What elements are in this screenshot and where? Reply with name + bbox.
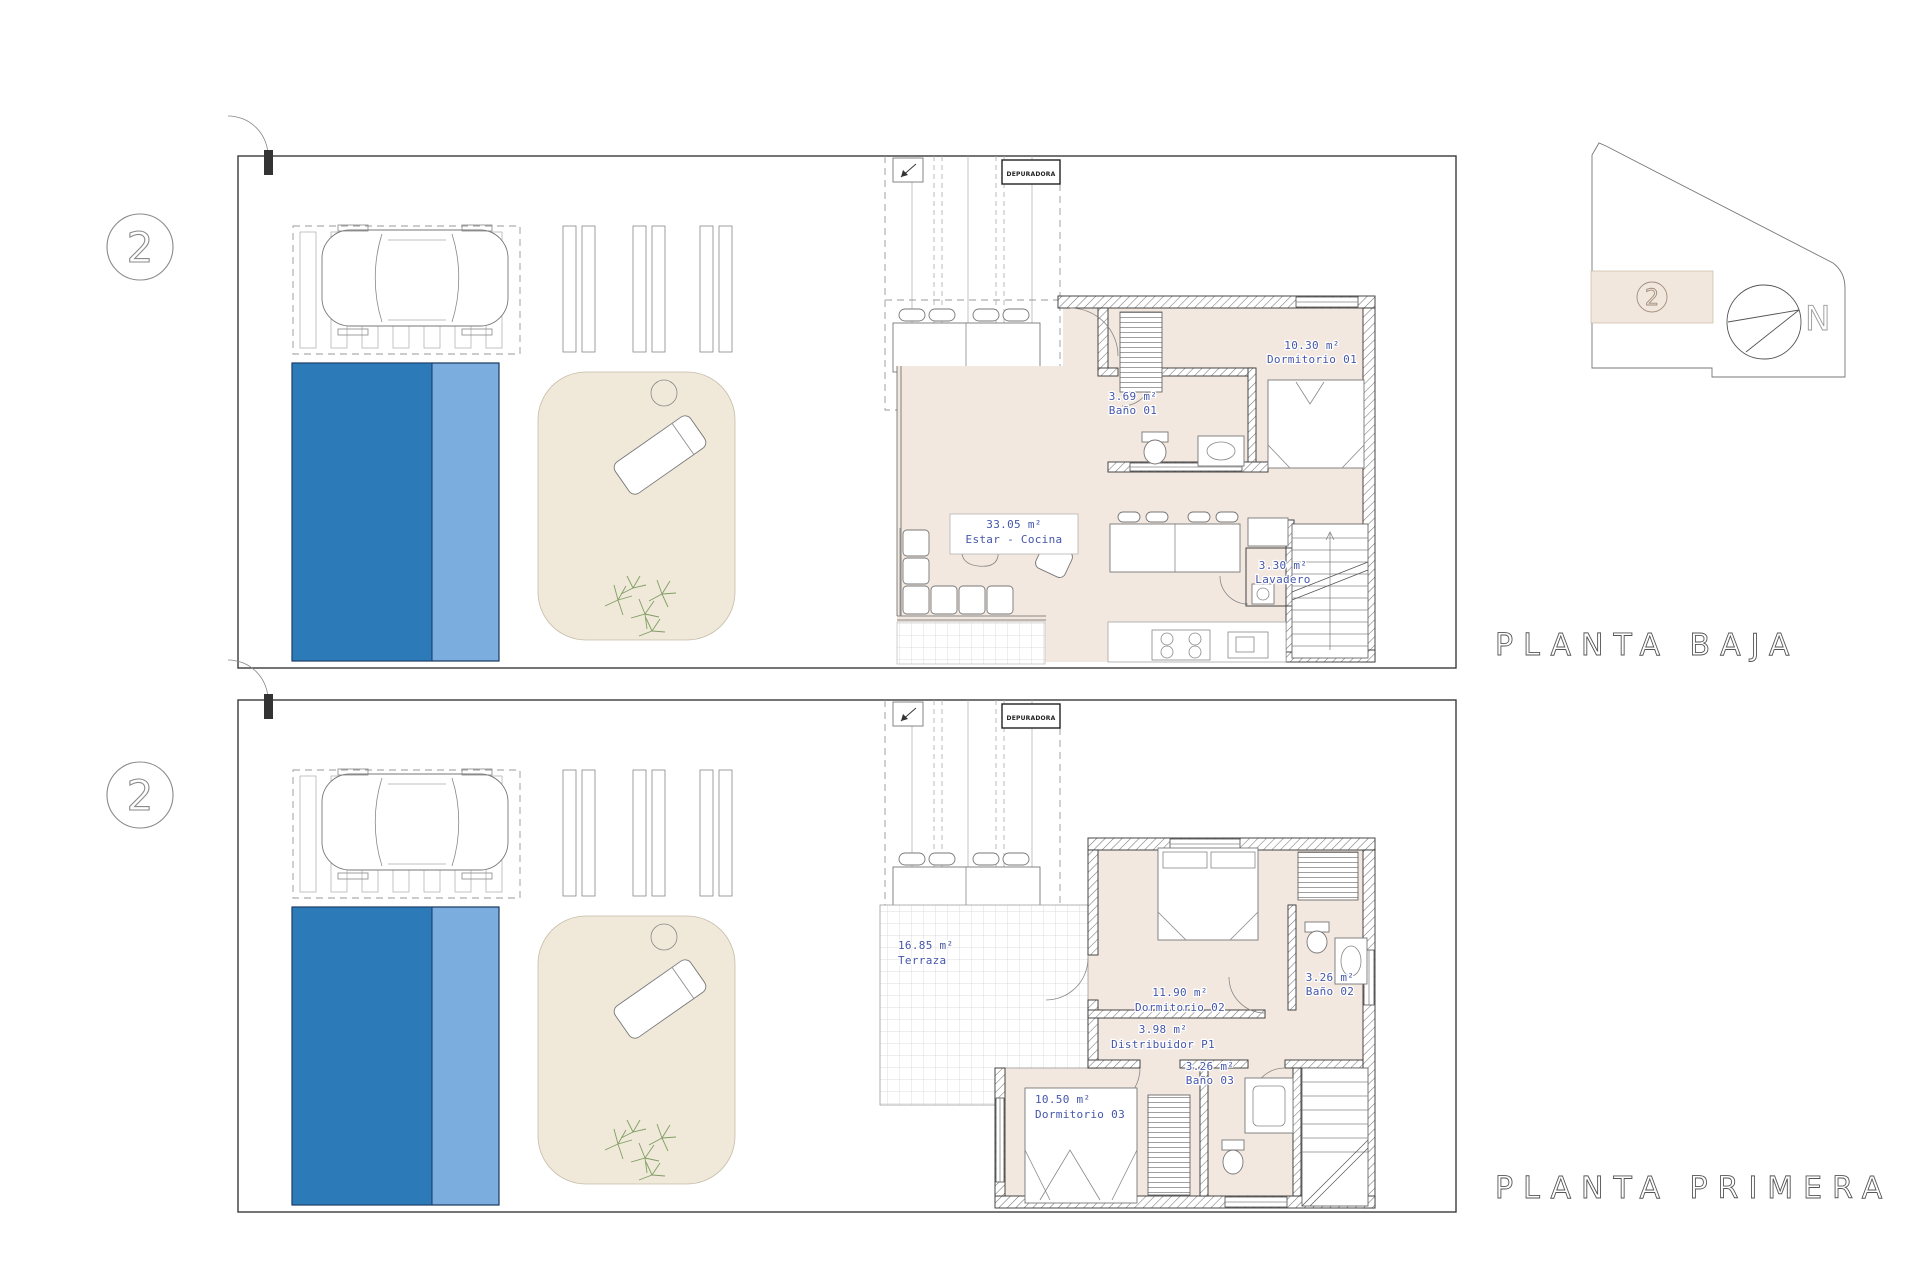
- room-label-distribuidor: Distribuidor P1: [1111, 1038, 1215, 1051]
- wardrobe: [1298, 852, 1358, 900]
- room-area-lavadero: 3.30 m²: [1259, 559, 1307, 572]
- room-label-bano-02: Baño 02: [1306, 985, 1354, 998]
- closet: [1148, 1095, 1190, 1195]
- key-plan: 2 N: [1591, 143, 1845, 377]
- plan-title-planta-primera: PLANTA PRIMERA: [1495, 1171, 1892, 1206]
- room-label-dormitorio-01: Dormitorio 01: [1267, 353, 1357, 366]
- planta-baja-plan: DEPURADORA: [107, 116, 1799, 668]
- room-label-bano-03: Baño 03: [1186, 1074, 1234, 1087]
- room-label-bano-01: Baño 01: [1109, 404, 1157, 417]
- wardrobe: [1120, 312, 1162, 392]
- north-compass: [1727, 285, 1801, 359]
- room-label-estar-cocina: Estar - Cocina: [966, 533, 1063, 546]
- room-label-dormitorio-02: Dormitorio 02: [1135, 1001, 1225, 1014]
- key-plan-outline: [1592, 143, 1845, 377]
- room-label-lavadero: Lavadero: [1255, 573, 1310, 586]
- plan-title-planta-baja: PLANTA BAJA: [1495, 628, 1799, 663]
- room-area-bano-03: 3.26 m²: [1186, 1060, 1234, 1073]
- staircase: [1292, 524, 1368, 658]
- bed-dormitorio-01: [1268, 380, 1364, 468]
- room-label-terraza: Terraza: [898, 954, 946, 967]
- depuradora-label: DEPURADORA: [1007, 715, 1056, 722]
- bed-dormitorio-02: [1158, 848, 1258, 940]
- depuradora-label: DEPURADORA: [1007, 171, 1056, 178]
- room-area-dormitorio-03: 10.50 m²: [1035, 1093, 1090, 1106]
- room-area-dormitorio-01: 10.30 m²: [1284, 339, 1339, 352]
- unit-badge-number: 2: [127, 223, 154, 272]
- room-area-bano-01: 3.69 m²: [1109, 390, 1157, 403]
- floor-plan-canvas: DEPURADORA: [0, 0, 1920, 1280]
- room-area-distribuidor: 3.98 m²: [1139, 1023, 1187, 1036]
- room-label-dormitorio-03: Dormitorio 03: [1035, 1108, 1125, 1121]
- room-area-estar-cocina: 33.05 m²: [986, 518, 1041, 531]
- room-area-terraza: 16.85 m²: [898, 939, 953, 952]
- porch-paving: [897, 622, 1045, 664]
- unit-badge-number: 2: [127, 771, 154, 820]
- staircase: [1302, 1068, 1368, 1206]
- room-area-bano-02: 3.26 m²: [1306, 971, 1354, 984]
- planta-primera-plan: DEPURADORA: [107, 660, 1892, 1212]
- north-label: N: [1805, 299, 1830, 339]
- room-area-dormitorio-02: 11.90 m²: [1152, 986, 1207, 999]
- key-unit-badge-number: 2: [1645, 286, 1659, 311]
